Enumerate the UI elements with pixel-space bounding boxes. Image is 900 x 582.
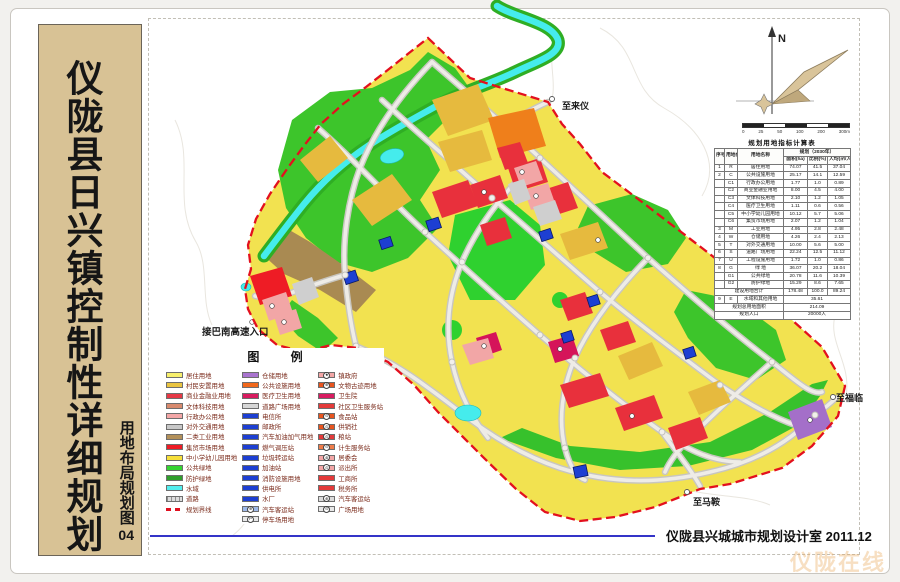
table-cell: 2.4 [808, 234, 828, 242]
color-swatch: ⊙ [318, 444, 335, 450]
table-cell: G1 [725, 273, 738, 281]
table-cell: 文体科技用地 [738, 195, 784, 203]
table-cell: 41.5 [808, 164, 828, 172]
color-swatch [242, 403, 259, 409]
table-cell: T [725, 242, 738, 250]
table-cell: 建设用地合计 [715, 288, 784, 296]
table-cell [715, 280, 725, 288]
table-cell: 37.04 [828, 164, 851, 172]
plan-title: 仪陇县日兴镇控制性详细规划 [63, 59, 100, 553]
table-cell: 商业金融业用地 [738, 187, 784, 195]
table-cell: 11.6 [808, 273, 828, 281]
table-cell: 25.17 [784, 172, 808, 180]
table-header-cell: 序号 [715, 149, 725, 165]
color-swatch [166, 372, 183, 378]
legend-item: ⊕文物古迹用地 [318, 380, 384, 390]
legend-item: 税务所 [318, 483, 384, 493]
table-cell: 2.07 [784, 218, 808, 226]
table-cell: 中小学幼儿园用地 [738, 211, 784, 219]
legend-item: 汽车加油加气用地 [242, 432, 313, 442]
legend-item: 垃圾转运站 [242, 452, 313, 462]
legend-label: 对外交通用地 [186, 422, 224, 431]
color-swatch [166, 475, 183, 481]
legend-item: 居住用地 [166, 370, 237, 380]
color-swatch [318, 403, 335, 409]
legend-label: 邮政所 [262, 422, 281, 431]
table-cell [715, 218, 725, 226]
color-swatch [166, 424, 183, 430]
scale-segment [785, 124, 806, 127]
table-header-cell: 比例(%) [808, 156, 828, 164]
table-cell: 22.24 [784, 249, 808, 257]
color-swatch [166, 413, 183, 419]
legend-label: 税务所 [338, 484, 357, 493]
table-cell: 工业用地 [738, 226, 784, 234]
table-cell: 5.6 [808, 242, 828, 250]
legend-item: 道路 [166, 494, 237, 504]
table-cell [715, 187, 725, 195]
legend-label: 供电所 [262, 484, 281, 493]
table-cell: M [725, 226, 738, 234]
table-cell: 10.39 [828, 273, 851, 281]
color-swatch [318, 475, 335, 481]
legend-item: 加油站 [242, 463, 313, 473]
scale-tick-label: 25 [758, 129, 763, 134]
table-cell: 1.72 [784, 257, 808, 265]
legend-label: 水厂 [262, 494, 275, 503]
legend-label: 汽车客运站 [338, 494, 370, 503]
boundary-swatch [166, 508, 183, 511]
color-swatch: ⊕ [242, 506, 259, 512]
legend-item: 公共绿地 [166, 463, 237, 473]
legend-item: 中小学幼儿园用地 [166, 452, 237, 462]
table-cell: 公共设施用地 [738, 172, 784, 180]
legend-label: 规划界线 [186, 505, 212, 514]
footer-rule [150, 535, 655, 537]
table-cell: G [725, 265, 738, 273]
legend-label: 中小学幼儿园用地 [186, 453, 237, 462]
table-cell: 178.48 [784, 288, 808, 296]
color-swatch: ⊕ [318, 496, 335, 502]
color-swatch [242, 465, 259, 471]
legend-label: 二类工业用地 [186, 432, 224, 441]
color-swatch [242, 413, 259, 419]
legend-label: 汽车加油加气用地 [262, 432, 313, 441]
color-swatch [242, 434, 259, 440]
table-header-cell: 用地名称 [738, 149, 784, 165]
legend-column: ★镇政府⊕文物古迹用地卫生院社区卫生服务站⊙食品站⊙供销社⊙粮站⊙计生服务站⊛居… [318, 370, 384, 524]
table-cell: 0.6 [808, 203, 828, 211]
table-cell: 水域和其他用地 [738, 296, 784, 304]
table-cell: C4 [725, 203, 738, 211]
legend-label: 卫生院 [338, 391, 357, 400]
table-cell: 4.00 [828, 187, 851, 195]
table-cell: 9 [715, 296, 725, 304]
legend-item: 水域 [166, 483, 237, 493]
legend-item: 对外交通用地 [166, 421, 237, 431]
legend-label: 居委会 [338, 453, 357, 462]
table-cell: 3 [715, 226, 725, 234]
sheet-number: 04 [118, 527, 134, 543]
table-header-cell: 规划（2030年） [784, 149, 851, 157]
table-cell: 8 [715, 265, 725, 273]
color-swatch [166, 444, 183, 450]
landuse-index-table: 规划用地指标计算表 序号用地代号用地名称规划（2030年）面积(ha)比例(%)… [714, 137, 850, 320]
legend-symbol-icon: ⊙ [323, 433, 330, 440]
color-swatch [242, 455, 259, 461]
legend-symbol-icon: P [247, 516, 254, 523]
table-cell: U [725, 257, 738, 265]
color-swatch [166, 382, 183, 388]
color-swatch [242, 372, 259, 378]
table-cell: 1.0 [808, 257, 828, 265]
legend-label: 粮站 [338, 432, 351, 441]
legend-item: 燃气调压站 [242, 442, 313, 452]
color-swatch [242, 444, 259, 450]
table-cell: 4.95 [784, 226, 808, 234]
table-cell: 2.10 [784, 195, 808, 203]
legend-item: ⊙供销社 [318, 421, 384, 431]
table-cell: R [725, 164, 738, 172]
table-grid: 序号用地代号用地名称规划（2030年）面积(ha)比例(%)人均(㎡/人) 1R… [714, 148, 851, 320]
scale-tick-label: 50 [777, 129, 782, 134]
legend-label: 燃气调压站 [262, 443, 294, 452]
table-cell: C3 [725, 195, 738, 203]
legend-item: 商业金融业用地 [166, 391, 237, 401]
scale-segment [807, 124, 828, 127]
table-cell: 规划人口 [715, 311, 784, 319]
table-cell: 1 [715, 164, 725, 172]
table-cell [715, 180, 725, 188]
legend-item: 集贸市场用地 [166, 442, 237, 452]
legend-label: 派出所 [338, 463, 357, 472]
legend-item: 文体科技用地 [166, 401, 237, 411]
table-cell: 11.12 [828, 249, 851, 257]
legend-label: 公共绿地 [186, 463, 212, 472]
table-cell: 1.2 [808, 195, 828, 203]
legend-label: 加油站 [262, 463, 281, 472]
table-cell [715, 195, 725, 203]
legend-column: 仓储用地公共设施用地医疗卫生用地道路广场用地电信所邮政所汽车加油加气用地燃气调压… [242, 370, 313, 524]
map-label: 至来仪 [562, 99, 589, 112]
legend-item: 村民安置用地 [166, 380, 237, 390]
table-cell: 对外交通用地 [738, 242, 784, 250]
legend-label: 食品站 [338, 412, 357, 421]
legend-symbol-icon: ⊕ [323, 495, 330, 502]
legend-label: 镇政府 [338, 371, 357, 380]
scale-segment [743, 124, 764, 127]
table-cell: 20.2 [808, 265, 828, 273]
legend-item: ⊕汽车客运站 [318, 494, 384, 504]
legend-label: 文物古迹用地 [338, 381, 376, 390]
legend-item: 水厂 [242, 494, 313, 504]
scale-tick-label: 100 [796, 129, 804, 134]
table-cell: 道路广场用地 [738, 249, 784, 257]
table-header-cell: 面积(ha) [784, 156, 808, 164]
table-cell: 8.00 [784, 187, 808, 195]
table-title: 规划用地指标计算表 [714, 137, 850, 147]
legend-item: ⊙广场用地 [318, 504, 384, 514]
legend-label: 行政办公用地 [186, 412, 224, 421]
table-cell: C5 [725, 211, 738, 219]
table-cell: 100.0 [808, 288, 828, 296]
legend-symbol-icon: ⊕ [247, 506, 254, 513]
legend-item: 规划界线 [166, 504, 237, 514]
legend-label: 村民安置用地 [186, 381, 224, 390]
map-label: 至福临 [836, 391, 863, 404]
scale-segment [764, 124, 785, 127]
legend: 图 例 居住用地村民安置用地商业金融业用地文体科技用地行政办公用地对外交通用地二… [166, 348, 384, 524]
sheet-subtitle: 用地布局规划图 04 [118, 420, 134, 543]
legend-symbol-icon: ⊕ [323, 382, 330, 389]
legend-symbol-icon: ⊙ [323, 506, 330, 513]
color-swatch: ⊕ [318, 382, 335, 388]
color-swatch [242, 382, 259, 388]
legend-label: 社区卫生服务站 [338, 402, 383, 411]
table-cell: 10.12 [784, 211, 808, 219]
map-label: 接巴南高速入口 [202, 324, 269, 338]
legend-label: 居住用地 [186, 371, 212, 380]
legend-column: 居住用地村民安置用地商业金融业用地文体科技用地行政办公用地对外交通用地二类工业用… [166, 370, 237, 524]
scale-tick-label: 200 [817, 129, 825, 134]
color-swatch [242, 496, 259, 502]
sheet-subtitle-text: 用地布局规划图 [119, 420, 134, 525]
table-cell: 7.65 [828, 280, 851, 288]
color-swatch [166, 455, 183, 461]
table-cell: 6 [715, 249, 725, 257]
table-cell [715, 273, 725, 281]
color-swatch [166, 465, 183, 471]
legend-label: 汽车客运站 [262, 505, 294, 514]
legend-columns: 居住用地村民安置用地商业金融业用地文体科技用地行政办公用地对外交通用地二类工业用… [166, 370, 384, 524]
table-cell: 2.8 [808, 226, 828, 234]
color-swatch [166, 496, 183, 502]
legend-label: 工商所 [338, 474, 357, 483]
legend-item: 行政办公用地 [166, 411, 237, 421]
table-cell: 18.04 [828, 265, 851, 273]
legend-label: 文体科技用地 [186, 402, 224, 411]
legend-label: 道路广场用地 [262, 402, 300, 411]
color-swatch [166, 434, 183, 440]
table-cell: 10.00 [784, 242, 808, 250]
color-swatch: ⊙ [318, 506, 335, 512]
legend-item: 消防设施用地 [242, 473, 313, 483]
table-cell [715, 211, 725, 219]
table-cell: 1.77 [784, 180, 808, 188]
table-cell: 5 [715, 242, 725, 250]
table-cell: 仓储用地 [738, 234, 784, 242]
color-swatch: ⊙ [318, 413, 335, 419]
legend-item: 公共设施用地 [242, 380, 313, 390]
table-cell: 4 [715, 234, 725, 242]
legend-symbol-icon: ★ [323, 372, 330, 379]
legend-item: ★镇政府 [318, 370, 384, 380]
table-header-cell: 人均(㎡/人) [828, 156, 851, 164]
table-cell: 公共绿地 [738, 273, 784, 281]
table-cell: 4.26 [784, 234, 808, 242]
color-swatch: P [242, 516, 259, 522]
table-cell: 集贸市场用地 [738, 218, 784, 226]
table-cell: 1.11 [784, 203, 808, 211]
legend-item: 道路广场用地 [242, 401, 313, 411]
table-cell: 1.04 [828, 218, 851, 226]
legend-label: 集贸市场用地 [186, 443, 224, 452]
legend-label: 消防设施用地 [262, 474, 300, 483]
color-swatch [242, 424, 259, 430]
scale-tick-label: 0 [742, 129, 745, 134]
legend-label: 停车场用地 [262, 515, 294, 524]
table-cell: 14.1 [808, 172, 828, 180]
table-cell: C6 [725, 218, 738, 226]
table-cell: 12.5 [808, 249, 828, 257]
scale-segment [828, 124, 849, 127]
legend-label: 计生服务站 [338, 443, 370, 452]
table-cell: 0.56 [828, 203, 851, 211]
legend-item: 仓储用地 [242, 370, 313, 380]
legend-label: 商业金融业用地 [186, 391, 231, 400]
legend-item: 防护绿地 [166, 473, 237, 483]
table-cell: 35.61 [784, 296, 851, 304]
color-swatch [166, 403, 183, 409]
color-swatch: ⊙ [318, 424, 335, 430]
table-cell: 0.89 [828, 180, 851, 188]
legend-symbol-icon: ⊙ [323, 444, 330, 451]
table-cell: E [725, 296, 738, 304]
legend-item: ⊙派出所 [318, 463, 384, 473]
scale-bar-segments [742, 123, 850, 128]
color-swatch [242, 393, 259, 399]
table-cell: 1.2 [808, 218, 828, 226]
legend-item: 工商所 [318, 473, 384, 483]
legend-item: ⊛居委会 [318, 452, 384, 462]
compass-rose: N [736, 26, 848, 114]
title-sidebar: 仪陇县日兴镇控制性详细规划 用地布局规划图 04 [38, 24, 142, 556]
table-cell: 1.0 [808, 180, 828, 188]
legend-item: 社区卫生服务站 [318, 401, 384, 411]
legend-item: ⊙粮站 [318, 432, 384, 442]
table-cell: 7 [715, 257, 725, 265]
legend-item: 卫生院 [318, 391, 384, 401]
table-cell: 20000人 [784, 311, 851, 319]
legend-label: 电信所 [262, 412, 281, 421]
legend-item: ⊙计生服务站 [318, 442, 384, 452]
legend-item: ⊙食品站 [318, 411, 384, 421]
table-cell: 15.29 [784, 280, 808, 288]
design-credit: 仪陇县兴城城市规划设计室 2011.12 [666, 526, 872, 545]
table-cell: 2.48 [828, 226, 851, 234]
color-swatch: ⊙ [318, 434, 335, 440]
legend-item: P停车场用地 [242, 514, 313, 524]
scale-tick-label: 300m [839, 129, 850, 134]
color-swatch [166, 393, 183, 399]
table-cell: C2 [725, 187, 738, 195]
color-swatch: ⊙ [318, 465, 335, 471]
table-cell: C [725, 172, 738, 180]
legend-label: 公共设施用地 [262, 381, 300, 390]
color-swatch: ★ [318, 372, 335, 378]
table-cell: 8.6 [808, 280, 828, 288]
legend-label: 仓储用地 [262, 371, 288, 380]
table-cell: C1 [725, 180, 738, 188]
table-cell: 规划总用地面积 [715, 304, 784, 312]
table-cell [715, 203, 725, 211]
table-cell: 5.00 [828, 242, 851, 250]
table-cell: 行政办公用地 [738, 180, 784, 188]
legend-label: 防护绿地 [186, 474, 212, 483]
site-watermark: 仪陇在线 [790, 545, 886, 577]
legend-symbol-icon: ⊙ [323, 413, 330, 420]
legend-label: 广场用地 [338, 505, 364, 514]
table-cell: G2 [725, 280, 738, 288]
table-header-cell: 用地代号 [725, 149, 738, 165]
table-cell: 214.09 [784, 304, 851, 312]
legend-symbol-icon: ⊙ [323, 464, 330, 471]
table-cell: 1.05 [828, 195, 851, 203]
compass-n-label: N [778, 33, 786, 45]
legend-item: ⊕汽车客运站 [242, 504, 313, 514]
color-swatch [318, 485, 335, 491]
table-cell: W [725, 234, 738, 242]
legend-label: 道路 [186, 494, 199, 503]
color-swatch [242, 485, 259, 491]
legend-symbol-icon: ⊛ [323, 454, 330, 461]
legend-title: 图 例 [166, 348, 384, 365]
table-cell: S [725, 249, 738, 257]
color-swatch: ⊛ [318, 455, 335, 461]
table-cell: 2.13 [828, 234, 851, 242]
scale-bar-labels: 02550100200300m [742, 129, 850, 134]
color-swatch [242, 475, 259, 481]
table-cell: 居住用地 [738, 164, 784, 172]
legend-label: 医疗卫生用地 [262, 391, 300, 400]
legend-label: 水域 [186, 484, 199, 493]
table-cell: 4.5 [808, 187, 828, 195]
legend-item: 邮政所 [242, 421, 313, 431]
table-cell: 0.86 [828, 257, 851, 265]
legend-label: 供销社 [338, 422, 357, 431]
table-cell: 5.7 [808, 211, 828, 219]
legend-item: 电信所 [242, 411, 313, 421]
table-cell: 绿 地 [738, 265, 784, 273]
table-cell: 工程设施用地 [738, 257, 784, 265]
table-cell: 医疗卫生用地 [738, 203, 784, 211]
scale-bar: 02550100200300m [742, 123, 850, 134]
table-cell: 89.24 [828, 288, 851, 296]
map-label: 至马鞍 [693, 495, 720, 508]
table-cell: 防护绿地 [738, 280, 784, 288]
legend-item: 二类工业用地 [166, 432, 237, 442]
color-swatch [166, 485, 183, 491]
legend-item: 医疗卫生用地 [242, 391, 313, 401]
legend-label: 垃圾转运站 [262, 453, 294, 462]
table-cell: 2 [715, 172, 725, 180]
table-cell: 12.59 [828, 172, 851, 180]
table-cell: 20.78 [784, 273, 808, 281]
table-cell: 74.07 [784, 164, 808, 172]
legend-symbol-icon: ⊙ [323, 423, 330, 430]
table-cell: 36.07 [784, 265, 808, 273]
color-swatch [318, 393, 335, 399]
table-cell: 5.06 [828, 211, 851, 219]
legend-item: 供电所 [242, 483, 313, 493]
